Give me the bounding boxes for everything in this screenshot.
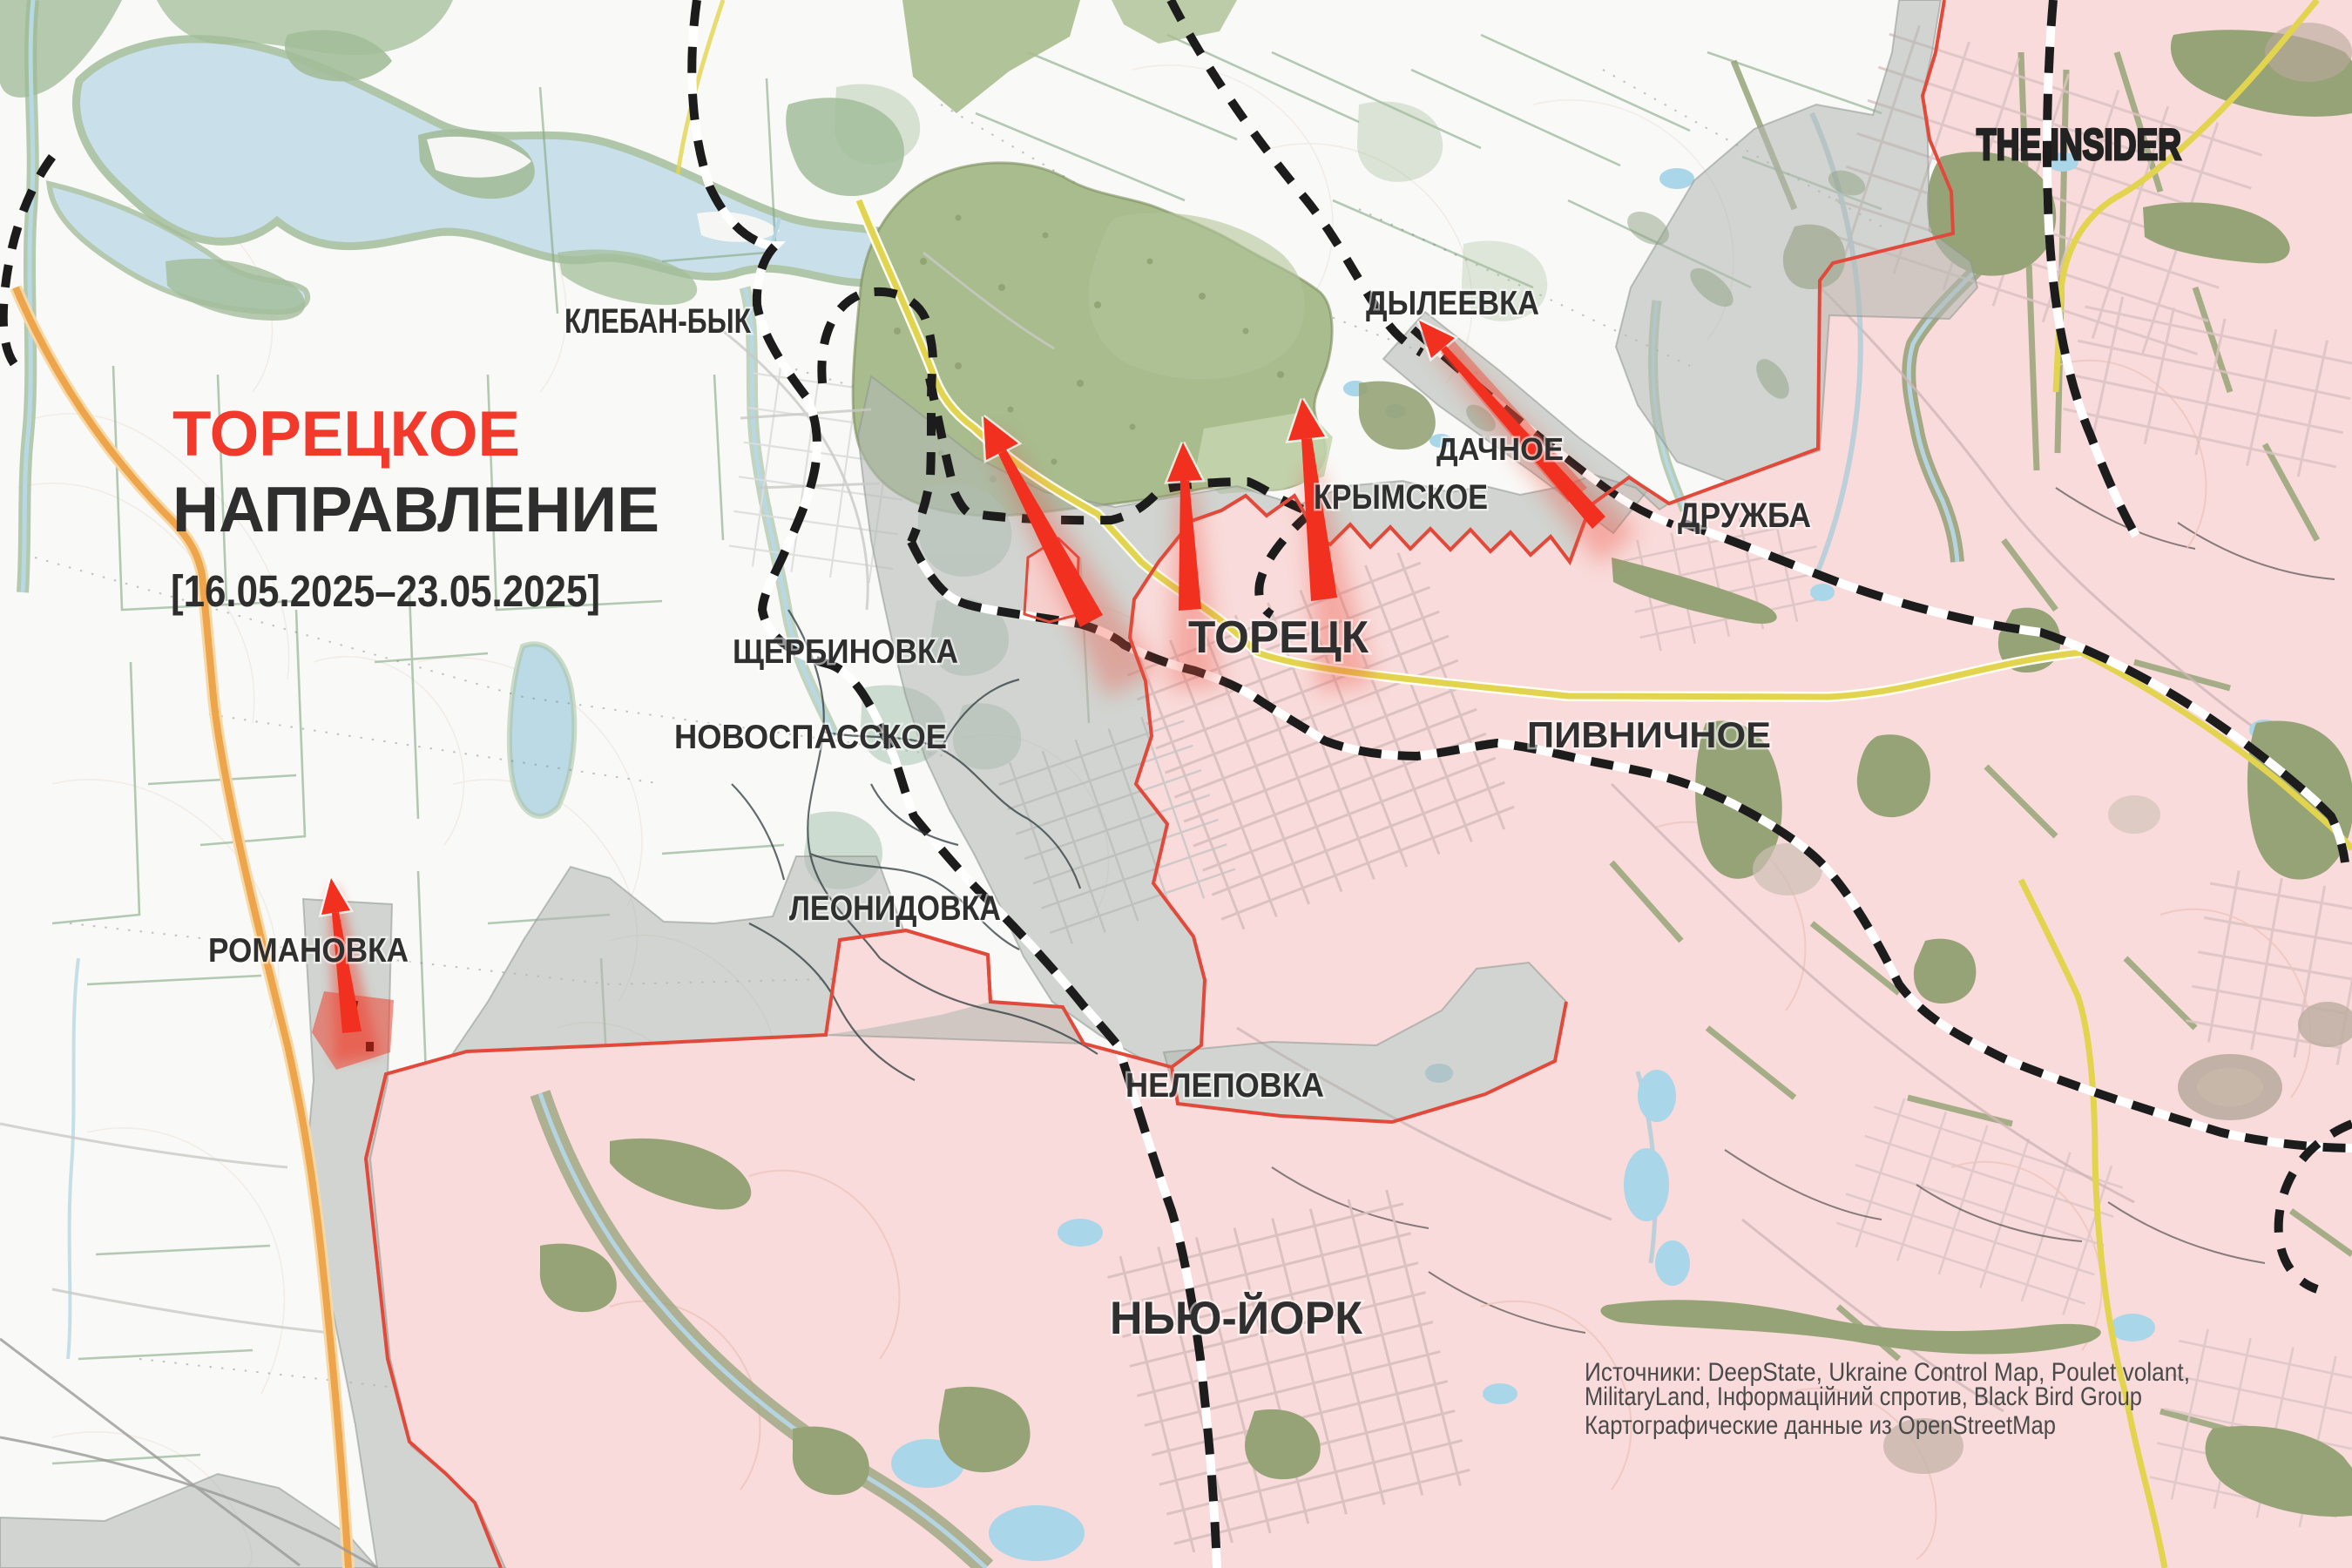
svg-text:ТОРЕЦК: ТОРЕЦК — [1188, 612, 1369, 663]
svg-text:РОМАНОВКА: РОМАНОВКА — [208, 932, 409, 970]
svg-text:КРЫМСКОЕ: КРЫМСКОЕ — [1314, 478, 1488, 517]
svg-text:ЩЕРБИНОВКА: ЩЕРБИНОВКА — [733, 633, 958, 671]
svg-text:MilitaryLand, Інформаційний сп: MilitaryLand, Інформаційний спротив, Bla… — [1585, 1382, 2142, 1411]
svg-text:ЛЕОНИДОВКА: ЛЕОНИДОВКА — [789, 889, 1001, 928]
svg-text:ДЫЛЕЕВКА: ДЫЛЕЕВКА — [1366, 285, 1539, 322]
svg-text:[16.05.2025–23.05.2025]: [16.05.2025–23.05.2025] — [171, 566, 600, 616]
svg-text:КЛЕБАН-БЫК: КЛЕБАН-БЫК — [564, 302, 751, 341]
svg-text:НОВОСПАССКОЕ: НОВОСПАССКОЕ — [674, 719, 947, 756]
svg-text:ПИВНИЧНОЕ: ПИВНИЧНОЕ — [1527, 714, 1771, 755]
svg-text:НАПРАВЛЕНИЕ: НАПРАВЛЕНИЕ — [172, 475, 659, 545]
svg-text:THE INSIDER: THE INSIDER — [1977, 120, 2181, 169]
svg-text:ДРУЖБА: ДРУЖБА — [1678, 497, 1811, 535]
svg-text:Картографические данные из Ope: Картографические данные из OpenStreetMap — [1585, 1411, 2056, 1440]
svg-text:ДАЧНОЕ: ДАЧНОЕ — [1436, 431, 1564, 467]
svg-text:НЬЮ-ЙОРК: НЬЮ-ЙОРК — [1110, 1291, 1363, 1344]
svg-text:НЕЛЕПОВКА: НЕЛЕПОВКА — [1125, 1067, 1324, 1105]
svg-text:ТОРЕЦКОЕ: ТОРЕЦКОЕ — [172, 399, 520, 470]
